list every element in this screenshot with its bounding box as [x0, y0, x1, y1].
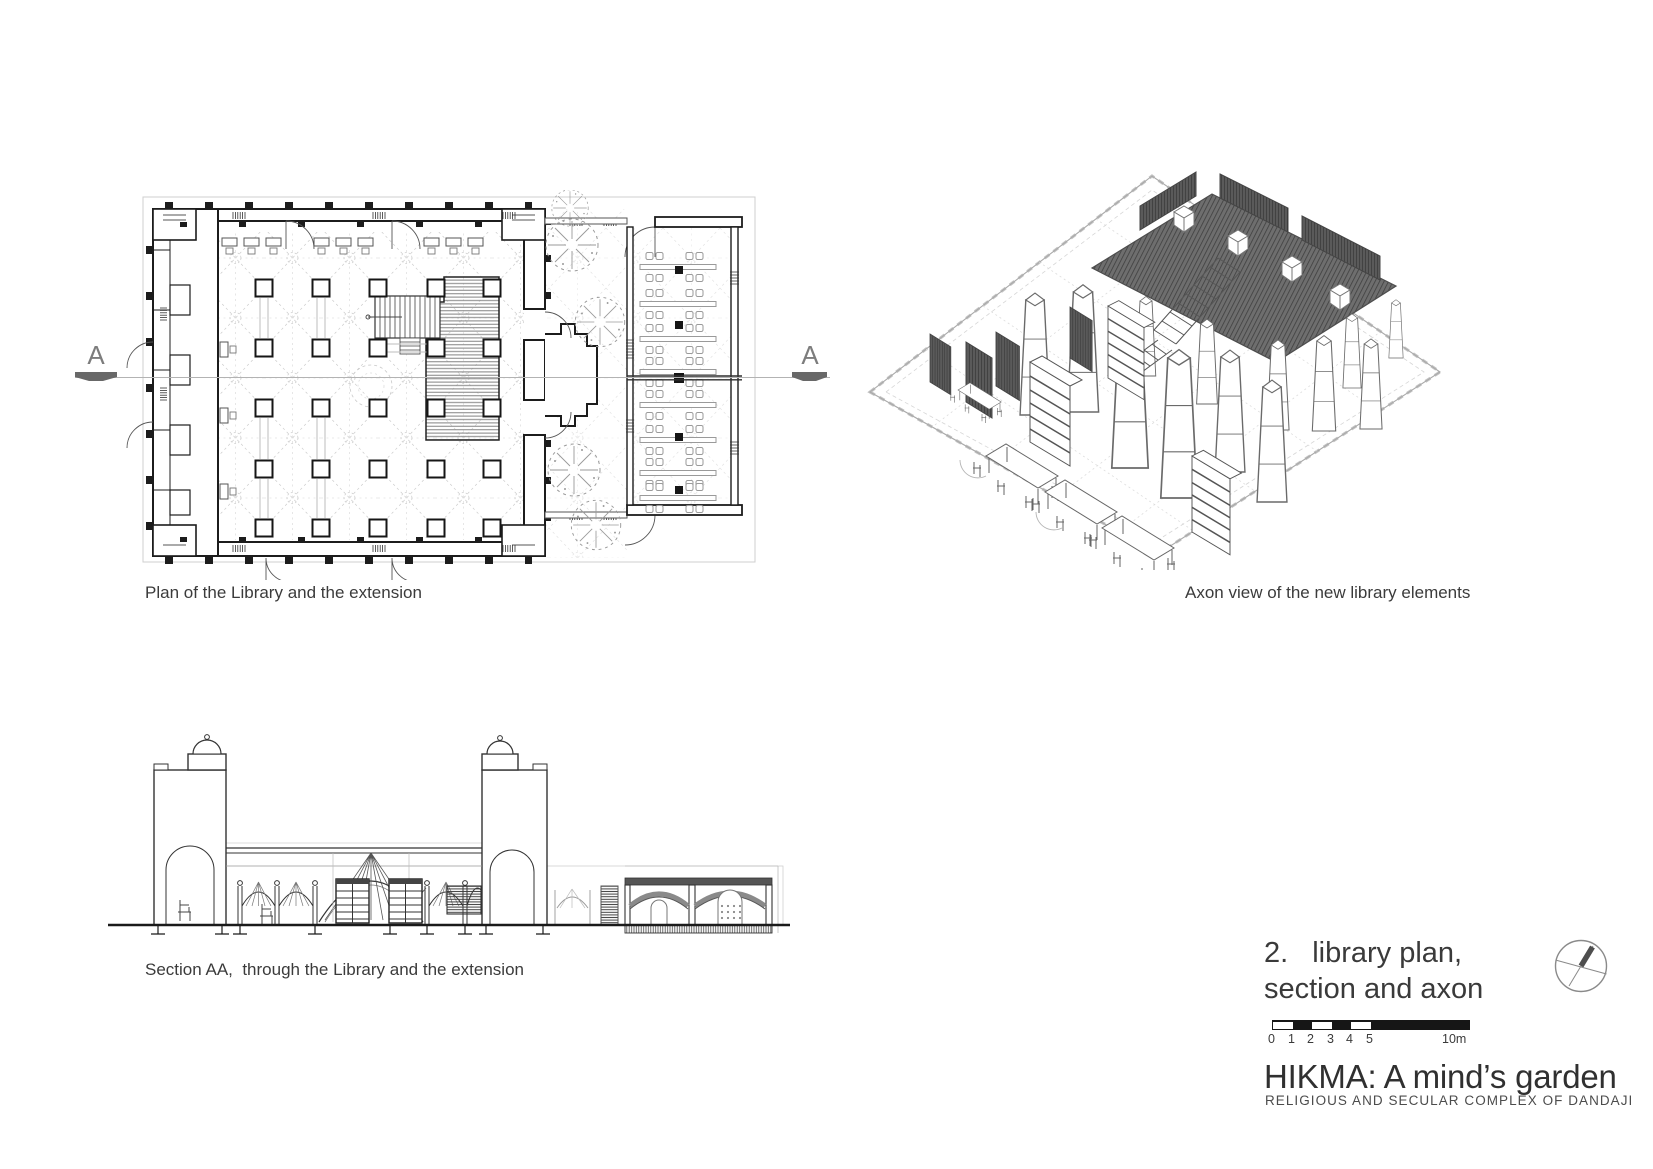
section-left-tower: [154, 735, 226, 925]
section-flag-left: [75, 372, 117, 381]
section-link-bay: [555, 886, 618, 925]
section-caption: Section AA, through the Library and the …: [145, 960, 524, 980]
section-right-tower: [482, 736, 547, 925]
section-hall-roof: [226, 848, 482, 866]
section-marker-right: A: [801, 340, 819, 370]
scale-tick: 0: [1268, 1032, 1275, 1046]
scale-tick: 4: [1346, 1032, 1353, 1046]
scale-tick: 1: [1288, 1032, 1295, 1046]
north-arrow-compass-icon: [1549, 934, 1613, 998]
title-block: 2. library plan, section and axon 0 1 2 …: [1264, 936, 1584, 1136]
section-trellis: [601, 886, 618, 925]
scale-tick: 2: [1307, 1032, 1314, 1046]
section-arched-window: [718, 890, 742, 925]
section-marker-left: A: [87, 340, 105, 370]
axon-drawing: [840, 150, 1460, 570]
scale-bar-ticks: 0 1 2 3 4 5 10m: [1272, 1030, 1482, 1046]
section-niche: [651, 900, 667, 925]
axon-caption: Axon view of the new library elements: [1185, 583, 1470, 603]
section-flag-right: [792, 372, 827, 381]
plan-caption: Plan of the Library and the extension: [145, 583, 422, 603]
plan-drawing: A A: [70, 190, 840, 580]
section-louver-screen: [447, 886, 481, 914]
scale-tick: 5: [1366, 1032, 1373, 1046]
sheet-number: 2.: [1264, 936, 1288, 970]
scale-end-label: 10m: [1442, 1032, 1466, 1046]
section-drawing: [100, 690, 800, 945]
project-title: HIKMA: A mind’s garden: [1264, 1058, 1617, 1096]
scale-bar-graphic: [1272, 1020, 1470, 1030]
scale-tick: 3: [1327, 1032, 1334, 1046]
sheet-title-line1: 2. library plan,: [1264, 936, 1462, 970]
section-shelves: [260, 879, 481, 925]
section-extension-floor: [625, 925, 772, 933]
sheet-title-line2: section and axon: [1264, 972, 1483, 1006]
scale-bar: 0 1 2 3 4 5 10m: [1272, 1020, 1482, 1050]
project-subtitle: RELIGIOUS AND SECULAR COMPLEX OF DANDAJI: [1265, 1093, 1633, 1108]
presentation-sheet: A A: [0, 0, 1653, 1169]
section-extension: [625, 866, 778, 933]
sheet-title-text: library plan,: [1312, 936, 1462, 970]
